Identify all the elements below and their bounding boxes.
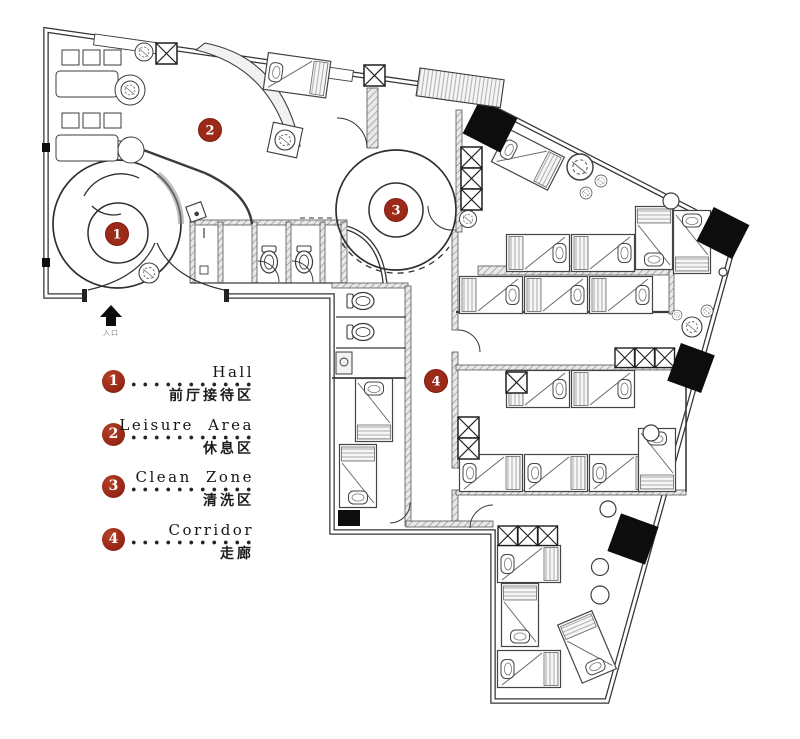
zone-marker-4: 4 (425, 370, 448, 393)
legend-badge-4: 4 (102, 528, 125, 551)
bed (507, 235, 570, 272)
svg-text:4: 4 (431, 375, 440, 390)
legend-label-zh: 前厅接待区 (169, 385, 254, 405)
legend-row-corridor: 4 Corridor 走廊 (98, 521, 256, 561)
zone-marker-3: 3 (385, 199, 408, 222)
entrance-label: 入口 (103, 329, 119, 337)
legend-badge-3: 3 (102, 475, 125, 498)
legend-label-en: Leisure Area (119, 416, 254, 434)
legend-row-clean-zone: 3 Clean Zone 清洗区 (98, 468, 256, 508)
legend-label-zh: 清洗区 (203, 490, 254, 510)
floor-plan-page: 入口 1 2 3 4 1 Hall 前厅接待区 2 Leisure Area 休… (0, 0, 800, 739)
svg-text:2: 2 (205, 124, 214, 139)
legend-label-en: Hall (212, 363, 254, 381)
legend-label-zh: 休息区 (203, 438, 254, 458)
legend-label-en: Clean Zone (135, 468, 254, 486)
legend-row-leisure-area: 2 Leisure Area 休息区 (98, 416, 256, 456)
legend-badge-1: 1 (102, 370, 125, 393)
svg-text:1: 1 (112, 228, 121, 243)
entrance-arrow: 入口 (100, 305, 122, 337)
zone-marker-1: 1 (106, 223, 129, 246)
legend-row-hall: 1 Hall 前厅接待区 (98, 363, 256, 403)
svg-text:3: 3 (391, 204, 400, 219)
zone-marker-2: 2 (199, 119, 222, 142)
legend-label-zh: 走廊 (220, 543, 254, 563)
legend-label-en: Corridor (169, 521, 254, 539)
entrance-opening (86, 288, 224, 303)
